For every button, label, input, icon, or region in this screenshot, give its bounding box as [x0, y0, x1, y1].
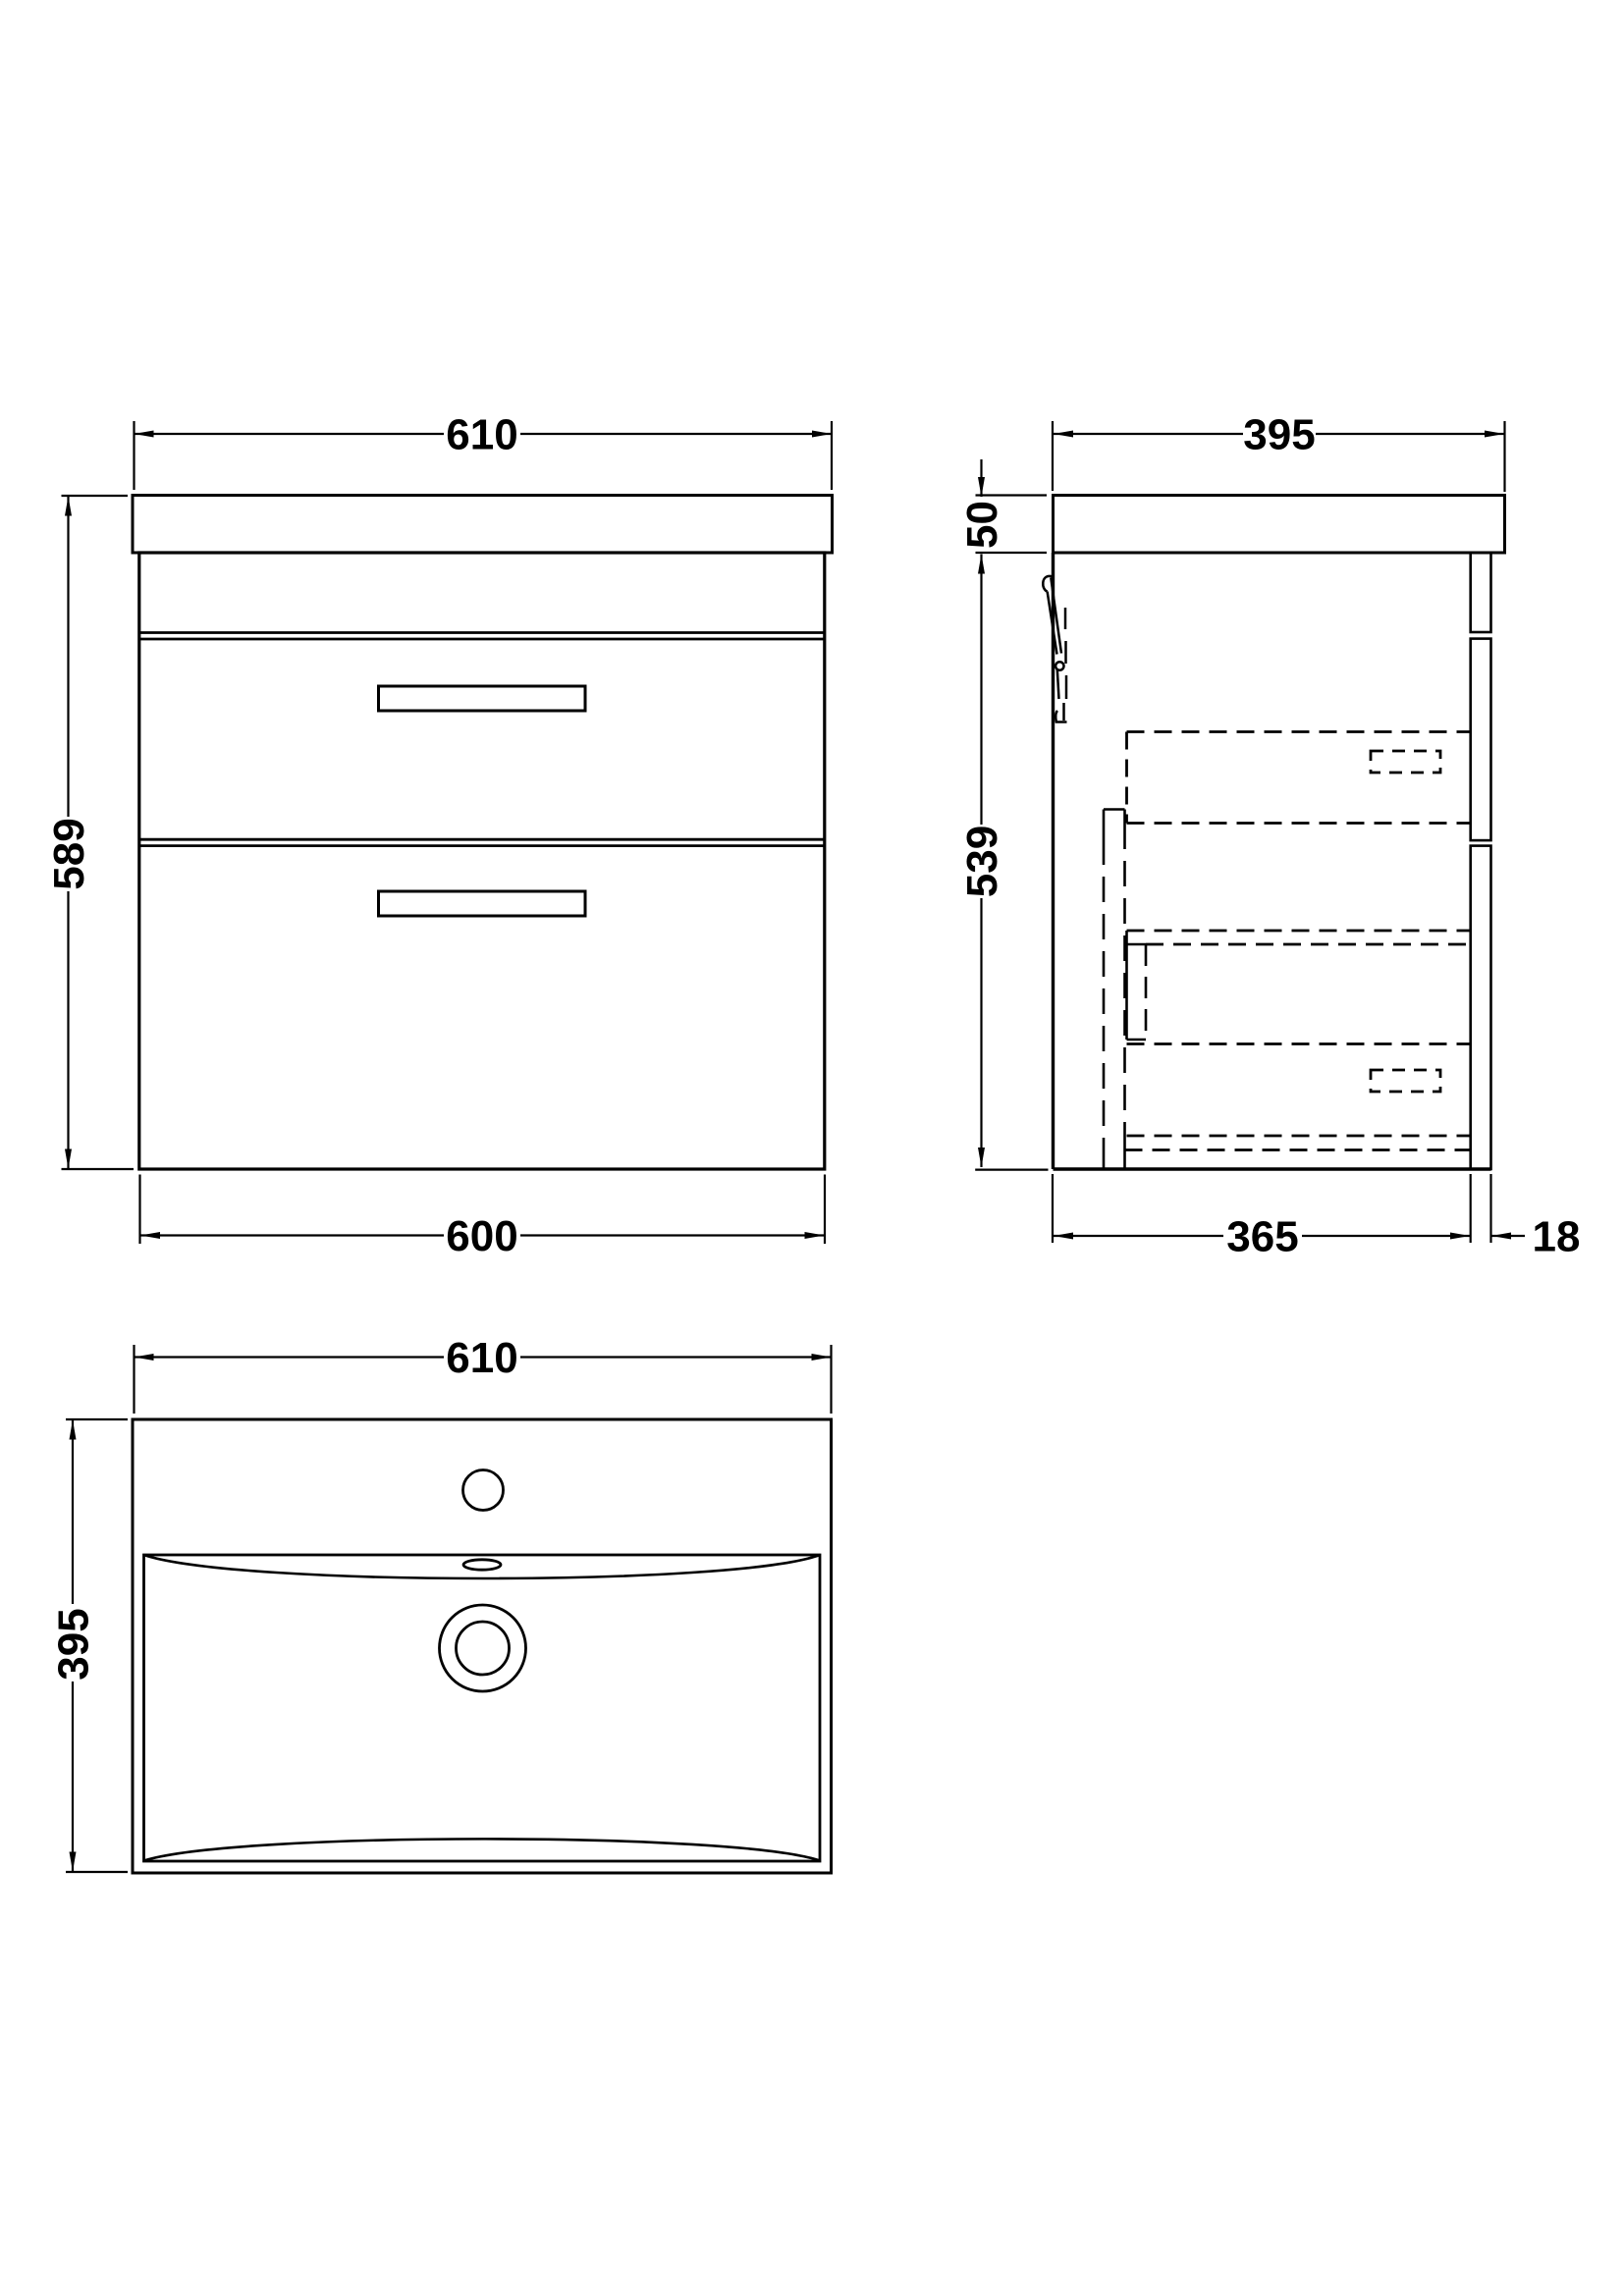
- svg-text:18: 18: [1533, 1213, 1581, 1261]
- svg-text:610: 610: [446, 411, 517, 459]
- svg-text:365: 365: [1226, 1213, 1298, 1261]
- svg-text:50: 50: [958, 501, 1006, 549]
- svg-text:539: 539: [958, 826, 1006, 897]
- svg-text:589: 589: [45, 818, 93, 889]
- svg-text:395: 395: [1243, 411, 1315, 459]
- svg-text:610: 610: [446, 1334, 517, 1382]
- svg-text:600: 600: [446, 1212, 517, 1260]
- svg-text:395: 395: [50, 1608, 98, 1680]
